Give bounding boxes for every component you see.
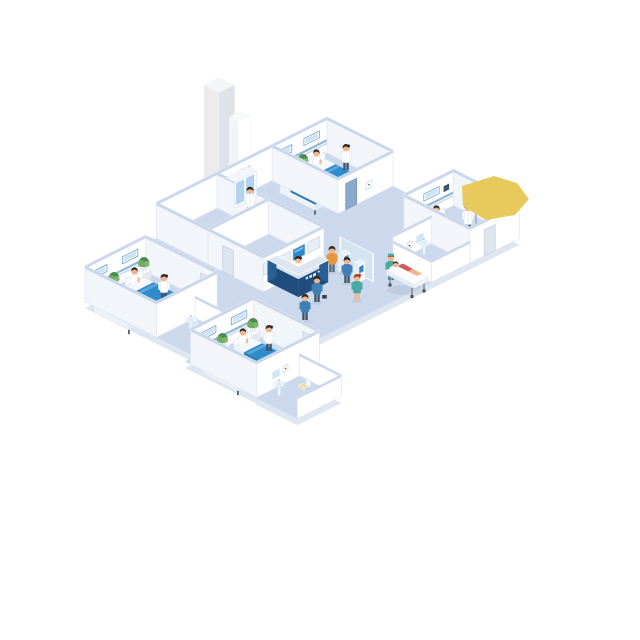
person-arm [361, 282, 363, 290]
shadow [387, 285, 427, 295]
shadow [327, 271, 338, 275]
wall-art-mark [368, 184, 370, 186]
shadow [352, 299, 363, 303]
stretcher-wheel [388, 283, 391, 286]
imaging-door [223, 245, 234, 277]
ward-right-door [484, 224, 495, 256]
hair-bun [358, 274, 361, 277]
isometric-hospital-scene [0, 0, 640, 640]
ward-top-door [346, 178, 357, 210]
shadow [312, 301, 323, 305]
shadow [342, 282, 353, 286]
wall-art-mark [285, 368, 287, 370]
stretcher-wheel [410, 295, 413, 298]
nurse-dress [353, 281, 361, 293]
person-arm [352, 282, 354, 290]
hospital-floor-illustration [0, 0, 640, 640]
cabinet-glass-door [236, 179, 245, 206]
wall-art-mark [409, 245, 411, 247]
desk-sign-dot [318, 271, 320, 273]
stretcher-wheel [422, 289, 425, 292]
briefcase [322, 295, 327, 299]
